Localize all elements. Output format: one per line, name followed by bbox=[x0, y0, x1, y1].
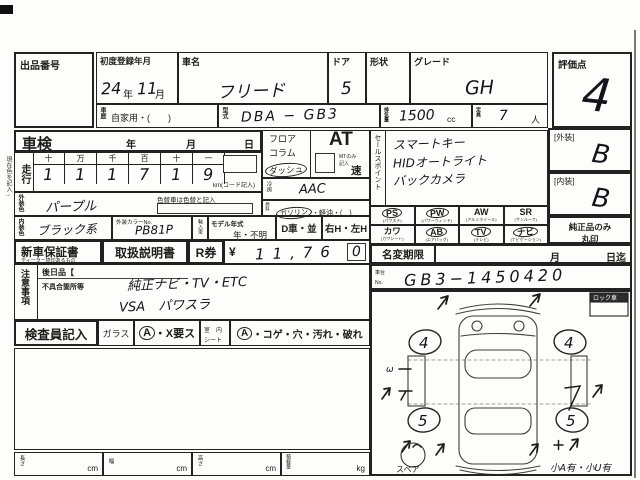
notes-label: 注意事項 bbox=[20, 269, 29, 319]
grade-label: グレード bbox=[414, 55, 450, 68]
margin-current-color-note: 現在色を記入→ bbox=[1, 156, 11, 198]
ac-box: 冷房 AAC bbox=[262, 178, 370, 200]
dim-width-box: 幅 cm bbox=[103, 452, 192, 476]
lot-number-box: 出品番号 bbox=[14, 52, 94, 128]
equip-aw: AW (アルミホイール) bbox=[459, 206, 504, 225]
interior-color-box: 内装色 ブラック系 bbox=[14, 216, 112, 240]
equip-leather-paren: (カワシート) bbox=[381, 236, 404, 242]
name-change-box: 名変期限 月 日迄 bbox=[370, 244, 632, 264]
equip-sr-paren: (サンルーフ) bbox=[515, 217, 537, 223]
exterior-grade-box: [外装] B bbox=[548, 128, 632, 172]
name-change-month-unit: 月 bbox=[550, 249, 560, 264]
place-header: 十 bbox=[161, 153, 192, 165]
grade-value: GH bbox=[465, 77, 495, 100]
equip-airbag: AB (エアバッグ) bbox=[415, 225, 460, 244]
year-unit: 年 bbox=[123, 86, 133, 101]
car-name-value: フリード bbox=[217, 76, 286, 103]
displacement-label: 排気量 bbox=[383, 107, 388, 122]
at-transmission-label: AT bbox=[329, 129, 353, 151]
scan-corner-mark bbox=[0, 5, 13, 14]
month-unit: 月 bbox=[155, 86, 165, 101]
score-value: 4 bbox=[579, 67, 614, 124]
interior-grade-box: [内装] B bbox=[548, 172, 632, 216]
dim-height-label: 高さ bbox=[196, 455, 202, 466]
seat-label-line2: シート bbox=[204, 335, 222, 344]
seat-label-box: 室 内 シート bbox=[200, 320, 230, 346]
handle-label: 右H・左H bbox=[325, 221, 367, 235]
place-header: 十 bbox=[33, 153, 64, 165]
door-box: ドア 5 bbox=[328, 52, 366, 104]
car-body-outline bbox=[408, 304, 587, 474]
equip-navi-paren: (ナビゲーション) bbox=[510, 237, 541, 243]
displacement-box: 排気量 1500 cc bbox=[380, 104, 472, 128]
glass-label: ガラス bbox=[103, 327, 130, 340]
car-name-label: 車名 bbox=[182, 55, 200, 68]
shift-position-box: フロア コラム ダッシュ AT MTのみ記入 速 bbox=[262, 130, 370, 178]
dealer-car-label: D車・並 bbox=[281, 221, 316, 235]
displacement-value: 1500 bbox=[399, 107, 435, 124]
chassis-number-value: GB3−1450420 bbox=[404, 265, 567, 290]
mileage-col: 百 7 bbox=[129, 153, 161, 184]
shift-floor-option: フロア bbox=[269, 132, 296, 145]
equipment-grid: PS (パワステ) PW (パワーウィンド) AW (アルミホイール) SR (… bbox=[370, 206, 548, 244]
shape-label: 形状 bbox=[370, 55, 388, 68]
score-label: 評価点 bbox=[558, 57, 587, 71]
equip-aw-paren: (アルミホイール) bbox=[466, 217, 497, 223]
model-code-label: 型式 bbox=[221, 107, 227, 119]
history-box: 車歴 自家用・( ) bbox=[96, 104, 218, 128]
name-change-day-unit: 日迄 bbox=[606, 249, 626, 264]
shaken-label: 車検 bbox=[22, 133, 52, 154]
interior-color-value: ブラック系 bbox=[37, 220, 98, 239]
equip-ps-label: PS bbox=[382, 207, 403, 218]
genuine-parts-box: 純正品のみ 丸印 bbox=[548, 216, 632, 244]
equip-sr: SR (サンルーフ) bbox=[504, 206, 549, 225]
dim-width-label: 幅 bbox=[107, 458, 113, 464]
omega-mark: ω bbox=[386, 365, 394, 375]
exterior-grade-value: B bbox=[590, 139, 612, 171]
glass-label-box: ガラス bbox=[98, 320, 134, 346]
interior-grade-label: [内装] bbox=[554, 176, 574, 187]
chassis-label-line1: 車台 bbox=[375, 269, 385, 276]
seat-label-line1: 室 内 bbox=[204, 325, 222, 334]
first-registration-box: 初度登録年月 24 年 11 月 bbox=[96, 52, 178, 104]
page-edge-line bbox=[634, 30, 636, 478]
dim-height-unit: cm bbox=[265, 464, 276, 473]
displacement-unit: cc bbox=[447, 114, 456, 124]
notes-line2: VSA パワスラ bbox=[119, 293, 211, 315]
car-name-box: 車名 フリード bbox=[178, 52, 328, 104]
inspector-notes-area bbox=[14, 348, 370, 450]
exterior-grade-label: [外装] bbox=[554, 132, 574, 143]
mileage-col: 十 1 bbox=[33, 153, 65, 184]
place-header: 千 bbox=[97, 153, 128, 165]
notes-line1: 純正ナビ・TV・ETC bbox=[127, 271, 248, 294]
equip-leather-label: カワ bbox=[384, 227, 401, 236]
mileage-col: 十 1 bbox=[161, 153, 193, 184]
speed-label: 速 bbox=[351, 163, 362, 178]
first-registration-year: 24 bbox=[101, 79, 122, 99]
shaken-day-unit: 日 bbox=[244, 136, 254, 151]
mt-speed-entry-box bbox=[315, 153, 335, 173]
recycle-ticket-label: R券 bbox=[196, 244, 217, 261]
lock-car-label: ロック車 bbox=[593, 294, 617, 302]
recolor-entry-box bbox=[157, 203, 253, 214]
interior-grade-value: B bbox=[590, 183, 612, 215]
ac-value: AAC bbox=[299, 182, 326, 198]
genuine-parts-line1: 純正品のみ bbox=[550, 221, 630, 233]
equip-airbag-label: AB bbox=[426, 226, 448, 237]
mileage-col: 千 1 bbox=[97, 153, 129, 184]
sales-line-2: HIDオートライト bbox=[393, 151, 487, 171]
glass-grade-box: A ・X要ス bbox=[134, 320, 200, 346]
dim-length-label: 長さ bbox=[18, 455, 24, 466]
mileage-digit: 1 bbox=[43, 165, 54, 184]
wheel-depth-rear-left: 5 bbox=[418, 412, 428, 430]
recycle-ticket-box: R券 bbox=[188, 240, 224, 264]
sales-line-1: スマートキー bbox=[393, 134, 465, 153]
dim-length-unit: cm bbox=[87, 464, 98, 473]
car-diagram-box: ロック車 bbox=[370, 290, 632, 476]
mileage-label: 走行 bbox=[19, 164, 29, 184]
model-year-label: モデル年式 bbox=[211, 218, 244, 228]
color-number-box: 外装カラーNo. PB81P bbox=[112, 216, 192, 240]
equip-tv: TV (テレビ) bbox=[459, 225, 504, 244]
place-header: 百 bbox=[129, 153, 160, 165]
mileage-box: 走行 十 1 万 1 千 1 百 7 bbox=[14, 152, 262, 192]
sales-line-3: バックカメラ bbox=[393, 170, 466, 190]
history-value: 自家用・( ) bbox=[111, 111, 171, 124]
seat-grade-options: ・コゲ・穴・汚れ・破れ bbox=[253, 326, 363, 341]
dim-load-box: 積載量 kg bbox=[281, 452, 370, 476]
genuine-parts-line2: 丸印 bbox=[550, 233, 630, 245]
shaken-month-unit: 月 bbox=[186, 136, 196, 151]
exterior-color-box: 外装色 パープル 色替車は色替と記入 bbox=[14, 192, 262, 216]
seat-grade-circled: A bbox=[237, 326, 253, 340]
interior-color-label: 内装色 bbox=[17, 218, 23, 240]
chassis-label-line2: No. bbox=[375, 280, 383, 286]
sales-points-label: セールスポイント bbox=[374, 134, 381, 204]
wheel-depth-front-left: 4 bbox=[419, 334, 429, 352]
dim-load-unit: kg bbox=[357, 464, 365, 473]
wheel-marks bbox=[407, 328, 590, 434]
score-box: 評価点 4 bbox=[552, 52, 632, 128]
lot-number-label: 出品番号 bbox=[20, 57, 60, 72]
place-header: 万 bbox=[65, 153, 96, 165]
shift-dash-option-circled: ダッシュ bbox=[265, 162, 308, 179]
equip-ps: PS (パワステ) bbox=[370, 206, 415, 225]
fuel-box: 燃料 ガソリン・軽油・( ) bbox=[262, 200, 370, 216]
place-header: 一 bbox=[193, 153, 224, 165]
model-code-box: 型式 DBA − GB3 bbox=[218, 104, 380, 128]
notes-box: 注意事項 後日品【 不具合箇所等 純正ナビ・TV・ETC VSA パワスラ bbox=[14, 264, 370, 320]
exterior-color-value: パープル bbox=[45, 195, 97, 216]
warranty-sub-label: ディーラー捺印あるもの bbox=[21, 257, 76, 264]
mileage-digit: 1 bbox=[107, 165, 118, 184]
later-items-label: 後日品【 bbox=[42, 267, 74, 278]
recycle-amount-last-digit: 0 bbox=[352, 244, 361, 260]
capacity-value: 7 bbox=[499, 108, 508, 124]
capacity-box: 定員 7 人 bbox=[472, 104, 548, 128]
equip-pw-label: PW bbox=[425, 207, 448, 219]
shift-column-option: コラム bbox=[269, 146, 296, 159]
manual-box: 取扱説明書 bbox=[102, 240, 188, 264]
damage-summary-note: 小A有・小U有 bbox=[550, 463, 612, 474]
equip-navi: ナビ (ナビゲーション) bbox=[504, 225, 549, 244]
auction-sheet: 現在色を記入→ 出品番号 初度登録年月 24 年 11 月 車名 フリード ドア… bbox=[0, 0, 640, 480]
handwritten-marks bbox=[399, 369, 580, 450]
door-value: 5 bbox=[341, 79, 353, 99]
km-unit-note: km(コード記入) bbox=[213, 180, 255, 189]
car-diagram: ロック車 bbox=[372, 292, 630, 474]
equip-pw-paren: (パワーウィンド) bbox=[421, 218, 452, 224]
wheel-depth-front-right: 4 bbox=[564, 334, 574, 352]
inspector-label-box: 検査員記入 bbox=[14, 320, 98, 346]
sales-points-box: セールスポイント スマートキー HIDオートライト バックカメラ bbox=[370, 130, 548, 206]
equip-aw-label: AW bbox=[474, 208, 489, 217]
equip-sr-label: SR bbox=[519, 208, 532, 217]
manual-label: 取扱説明書 bbox=[115, 244, 175, 261]
shape-box: 形状 bbox=[366, 52, 410, 104]
name-change-label: 名変期限 bbox=[382, 247, 424, 262]
glass-grade-circled: A bbox=[138, 325, 155, 340]
shaken-box: 車検 年 月 日 bbox=[14, 130, 262, 152]
equip-tv-label: TV bbox=[471, 226, 491, 237]
fuel-label: 燃料 bbox=[265, 202, 270, 211]
wheel-depth-rear-right: 5 bbox=[566, 412, 576, 430]
defects-label: 不具合箇所等 bbox=[42, 282, 84, 292]
import-car-box: 輸入車 bbox=[192, 216, 208, 240]
fuel-gasoline-circled: ガソリン bbox=[276, 206, 313, 220]
history-label: 車歴 bbox=[99, 107, 105, 119]
recycle-amount-last-digit-box: 0 bbox=[347, 243, 366, 261]
ac-label: 冷房 bbox=[265, 181, 271, 192]
color-number-value: PB81P bbox=[135, 222, 173, 237]
dim-load-label: 積載量 bbox=[285, 454, 290, 469]
seat-grade-box: A ・コゲ・穴・汚れ・破れ bbox=[230, 320, 370, 346]
recycle-amount-box: ¥ 11,76 0 bbox=[224, 240, 370, 264]
mileage-digit: 7 bbox=[139, 165, 150, 184]
mileage-digit: 1 bbox=[171, 165, 182, 184]
equip-airbag-paren: (エアバッグ) bbox=[425, 237, 448, 243]
model-code-value: DBA − GB3 bbox=[241, 106, 339, 125]
dim-height-box: 高さ cm bbox=[192, 452, 281, 476]
capacity-label: 定員 bbox=[475, 107, 480, 117]
mileage-digit: 1 bbox=[75, 165, 86, 184]
dim-width-unit: cm bbox=[176, 464, 187, 473]
equip-leather: カワ (カワシート) bbox=[370, 225, 415, 244]
shaken-year-unit: 年 bbox=[126, 136, 136, 151]
recycle-amount-value: 11,76 bbox=[255, 243, 339, 264]
warranty-box: 新車保証書 ディーラー捺印あるもの bbox=[14, 240, 102, 264]
grade-box: グレード GH bbox=[410, 52, 548, 104]
equip-tv-paren: (テレビ) bbox=[474, 237, 489, 243]
mileage-label-col: 走行 bbox=[15, 153, 34, 191]
inspector-label: 検査員記入 bbox=[25, 324, 88, 343]
mileage-col: 万 1 bbox=[65, 153, 97, 184]
yen-sign: ¥ bbox=[229, 245, 236, 259]
capacity-unit: 人 bbox=[531, 113, 540, 126]
lock-car-box: ロック車 bbox=[590, 293, 628, 316]
first-registration-label: 初度登録年月 bbox=[100, 55, 151, 67]
glass-grade-options: ・X要ス bbox=[155, 325, 195, 341]
fuel-options-rest: ・軽油・( ) bbox=[312, 210, 352, 217]
model-year-box: モデル年式 年・不明 bbox=[208, 216, 276, 240]
chassis-number-box: 車台 No. GB3−1450420 bbox=[370, 264, 632, 290]
odometer-check-box bbox=[223, 155, 257, 173]
equip-pw: PW (パワーウィンド) bbox=[415, 206, 460, 225]
exterior-color-label: 外装色 bbox=[17, 194, 23, 216]
door-label: ドア bbox=[332, 55, 350, 68]
spare-tire-label: スペア bbox=[396, 465, 419, 474]
dim-length-box: 長さ cm bbox=[14, 452, 103, 476]
import-car-label: 輸入車 bbox=[197, 219, 202, 234]
